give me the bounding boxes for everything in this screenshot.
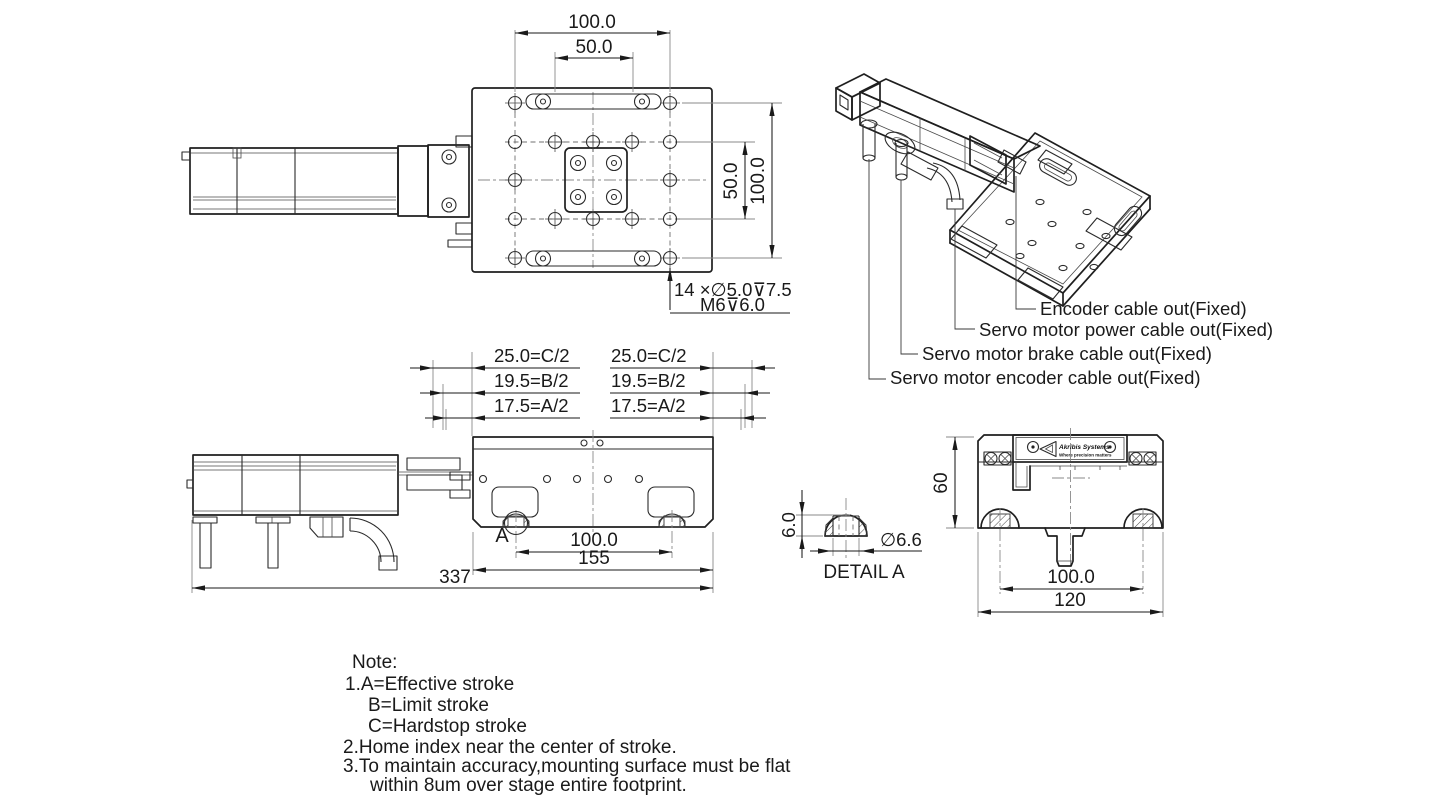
- dim-detail-6: 6.0: [778, 512, 799, 538]
- side-view: A 100.0 155 337: [187, 430, 713, 593]
- end-view-dimensions: 60 100.0 120: [931, 437, 1163, 617]
- side-view-dimensions: 100.0 155 337: [192, 520, 713, 593]
- cad-drawing: 100.0 50.0 50.0 100.0 14 ×∅5.0⊽7.5 M6⊽6.…: [0, 0, 1438, 812]
- top-view: 100.0 50.0 50.0 100.0 14 ×∅5.0⊽7.5 M6⊽6.…: [182, 12, 792, 315]
- dim-b2-right: 19.5=B/2: [611, 370, 686, 391]
- end-view: Akribis Systems Where precision matters …: [931, 428, 1163, 617]
- callout-brake-cable: Servo motor brake cable out(Fixed): [922, 343, 1212, 364]
- note-line-6: within 8um over stage entire footprint.: [369, 775, 687, 796]
- detail-a-view: 6.0 ∅6.6 DETAIL A: [778, 490, 922, 583]
- dim-right-100: 100.0: [748, 157, 769, 205]
- detail-a-marker-label: A: [495, 525, 509, 547]
- dim-c2-left: 25.0=C/2: [494, 345, 570, 366]
- dim-top-100: 100.0: [568, 12, 616, 33]
- callout-motor-encoder-cable: Servo motor encoder cable out(Fixed): [890, 367, 1201, 388]
- note-line-4: 2.Home index near the center of stroke.: [343, 737, 677, 758]
- note-title: Note:: [352, 652, 397, 673]
- hole-crosses: [505, 93, 680, 268]
- dim-side-337: 337: [439, 567, 471, 588]
- dim-detail-dia: ∅6.6: [880, 529, 922, 550]
- hole-pattern: [509, 97, 677, 265]
- dim-end-100: 100.0: [1047, 567, 1095, 588]
- notes: Note: 1.A=Effective stroke B=Limit strok…: [343, 652, 791, 796]
- note-line-1: 1.A=Effective stroke: [345, 674, 514, 695]
- dim-end-120: 120: [1054, 590, 1086, 611]
- dim-right-50: 50.0: [721, 163, 742, 200]
- callout-power-cable: Servo motor power cable out(Fixed): [979, 319, 1273, 340]
- dim-a2-left: 17.5=A/2: [494, 395, 569, 416]
- dim-end-60: 60: [931, 472, 952, 493]
- dim-top-50: 50.0: [576, 37, 613, 58]
- callout-encoder-cable: Encoder cable out(Fixed): [1040, 298, 1247, 319]
- iso-view: Encoder cable out(Fixed) Servo motor pow…: [836, 74, 1273, 388]
- detail-a-title: DETAIL A: [823, 562, 905, 583]
- dim-a2-right: 17.5=A/2: [611, 395, 686, 416]
- brand-name: Akribis Systems: [1058, 444, 1110, 451]
- dim-b2-left: 19.5=B/2: [494, 370, 569, 391]
- hole-callout-line2: M6⊽6.0: [700, 294, 765, 315]
- brand-logo-icon: [1040, 442, 1056, 457]
- dim-side-155: 155: [578, 548, 610, 569]
- stroke-dimensions: 25.0=C/2 19.5=B/2 17.5=A/2 25.0=C/2 19.5…: [410, 345, 775, 436]
- note-line-5: 3.To maintain accuracy,mounting surface …: [343, 756, 791, 777]
- top-view-dimensions: 100.0 50.0 50.0 100.0 14 ×∅5.0⊽7.5 M6⊽6.…: [515, 12, 792, 315]
- brand-tagline: Where precision matters: [1059, 453, 1112, 458]
- note-line-2: B=Limit stroke: [368, 695, 489, 716]
- note-line-3: C=Hardstop stroke: [368, 716, 527, 737]
- dim-c2-right: 25.0=C/2: [611, 345, 687, 366]
- drawing-canvas: 100.0 50.0 50.0 100.0 14 ×∅5.0⊽7.5 M6⊽6.…: [0, 0, 1438, 812]
